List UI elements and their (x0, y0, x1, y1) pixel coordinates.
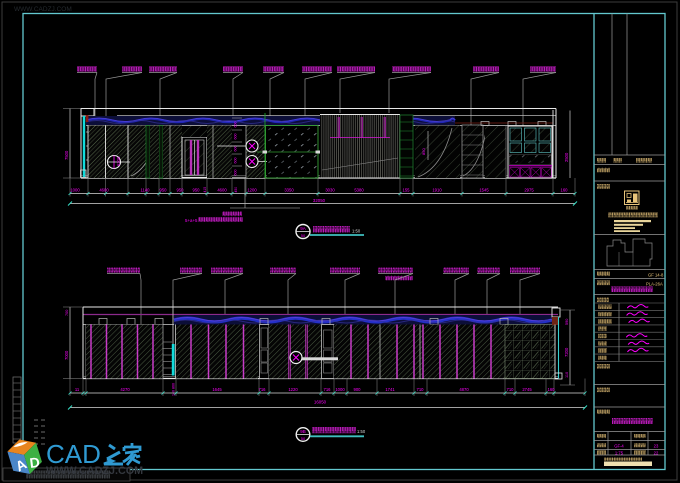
svg-text:GF-4: GF-4 (614, 444, 624, 449)
svg-text:700: 700 (65, 310, 69, 316)
svg-text:4270: 4270 (120, 387, 130, 392)
svg-text:GF 14-8: GF 14-8 (648, 273, 664, 278)
svg-text:1:50: 1:50 (357, 429, 366, 434)
svg-text:23: 23 (654, 444, 659, 449)
svg-text:3350: 3350 (284, 188, 294, 193)
svg-text:4600: 4600 (217, 188, 227, 193)
svg-text:950: 950 (177, 188, 185, 193)
svg-text:450: 450 (234, 187, 238, 193)
svg-text:2975: 2975 (524, 188, 534, 193)
svg-text:9A: 9A (300, 226, 306, 231)
svg-text:600: 600 (234, 122, 238, 128)
svg-text:590: 590 (565, 319, 569, 325)
svg-text:3030: 3030 (325, 188, 335, 193)
svg-text:1000: 1000 (335, 387, 345, 392)
svg-text:1000: 1000 (70, 188, 80, 193)
svg-text:1:75: 1:75 (615, 451, 624, 456)
svg-text:22: 22 (654, 451, 659, 456)
svg-text:600: 600 (234, 134, 238, 140)
svg-text:5380: 5380 (354, 188, 364, 193)
svg-text:7200: 7200 (564, 347, 569, 357)
svg-text:710: 710 (417, 387, 425, 392)
svg-text:2500: 2500 (564, 152, 569, 162)
svg-text:32050: 32050 (313, 198, 326, 203)
svg-text:1:50: 1:50 (352, 229, 361, 234)
svg-text:6200: 6200 (116, 156, 121, 166)
svg-text:11: 11 (75, 387, 80, 392)
svg-text:110: 110 (565, 372, 569, 378)
svg-text:4600: 4600 (99, 188, 109, 193)
svg-text:415: 415 (203, 187, 207, 193)
svg-text:50: 50 (301, 436, 306, 441)
svg-text:7000: 7000 (64, 350, 69, 360)
svg-text:710: 710 (507, 387, 515, 392)
svg-text:1220: 1220 (288, 387, 298, 392)
svg-text:9B: 9B (300, 429, 306, 434)
svg-text:1910: 1910 (432, 188, 442, 193)
svg-text:D: D (29, 454, 41, 471)
svg-text:CAD: CAD (46, 439, 101, 469)
svg-text:7500: 7500 (64, 150, 69, 160)
svg-text:PLA-26A: PLA-26A (646, 282, 663, 287)
svg-text:160: 160 (548, 387, 556, 392)
svg-text:716: 716 (324, 387, 332, 392)
svg-text:900: 900 (354, 387, 362, 392)
svg-text:1200: 1200 (247, 188, 257, 193)
svg-text:600: 600 (234, 158, 238, 164)
svg-text:1140: 1140 (140, 188, 150, 193)
svg-text:WWW.CADZJ.COM: WWW.CADZJ.COM (14, 6, 72, 13)
svg-text:4870: 4870 (459, 387, 469, 392)
svg-text:1645: 1645 (212, 387, 222, 392)
svg-text:50: 50 (301, 233, 306, 238)
svg-text:16050: 16050 (314, 400, 327, 405)
svg-text:600: 600 (234, 170, 238, 176)
svg-text:950: 950 (160, 188, 168, 193)
svg-text:850: 850 (421, 148, 426, 155)
svg-text:2745: 2745 (522, 387, 532, 392)
svg-text:5+a+5: 5+a+5 (185, 218, 198, 223)
svg-text:716: 716 (259, 387, 267, 392)
svg-text:155: 155 (403, 188, 411, 193)
svg-text:1741: 1741 (385, 387, 395, 392)
svg-text:160: 160 (561, 188, 569, 193)
svg-text:1545: 1545 (479, 188, 489, 193)
svg-text:950: 950 (193, 188, 201, 193)
